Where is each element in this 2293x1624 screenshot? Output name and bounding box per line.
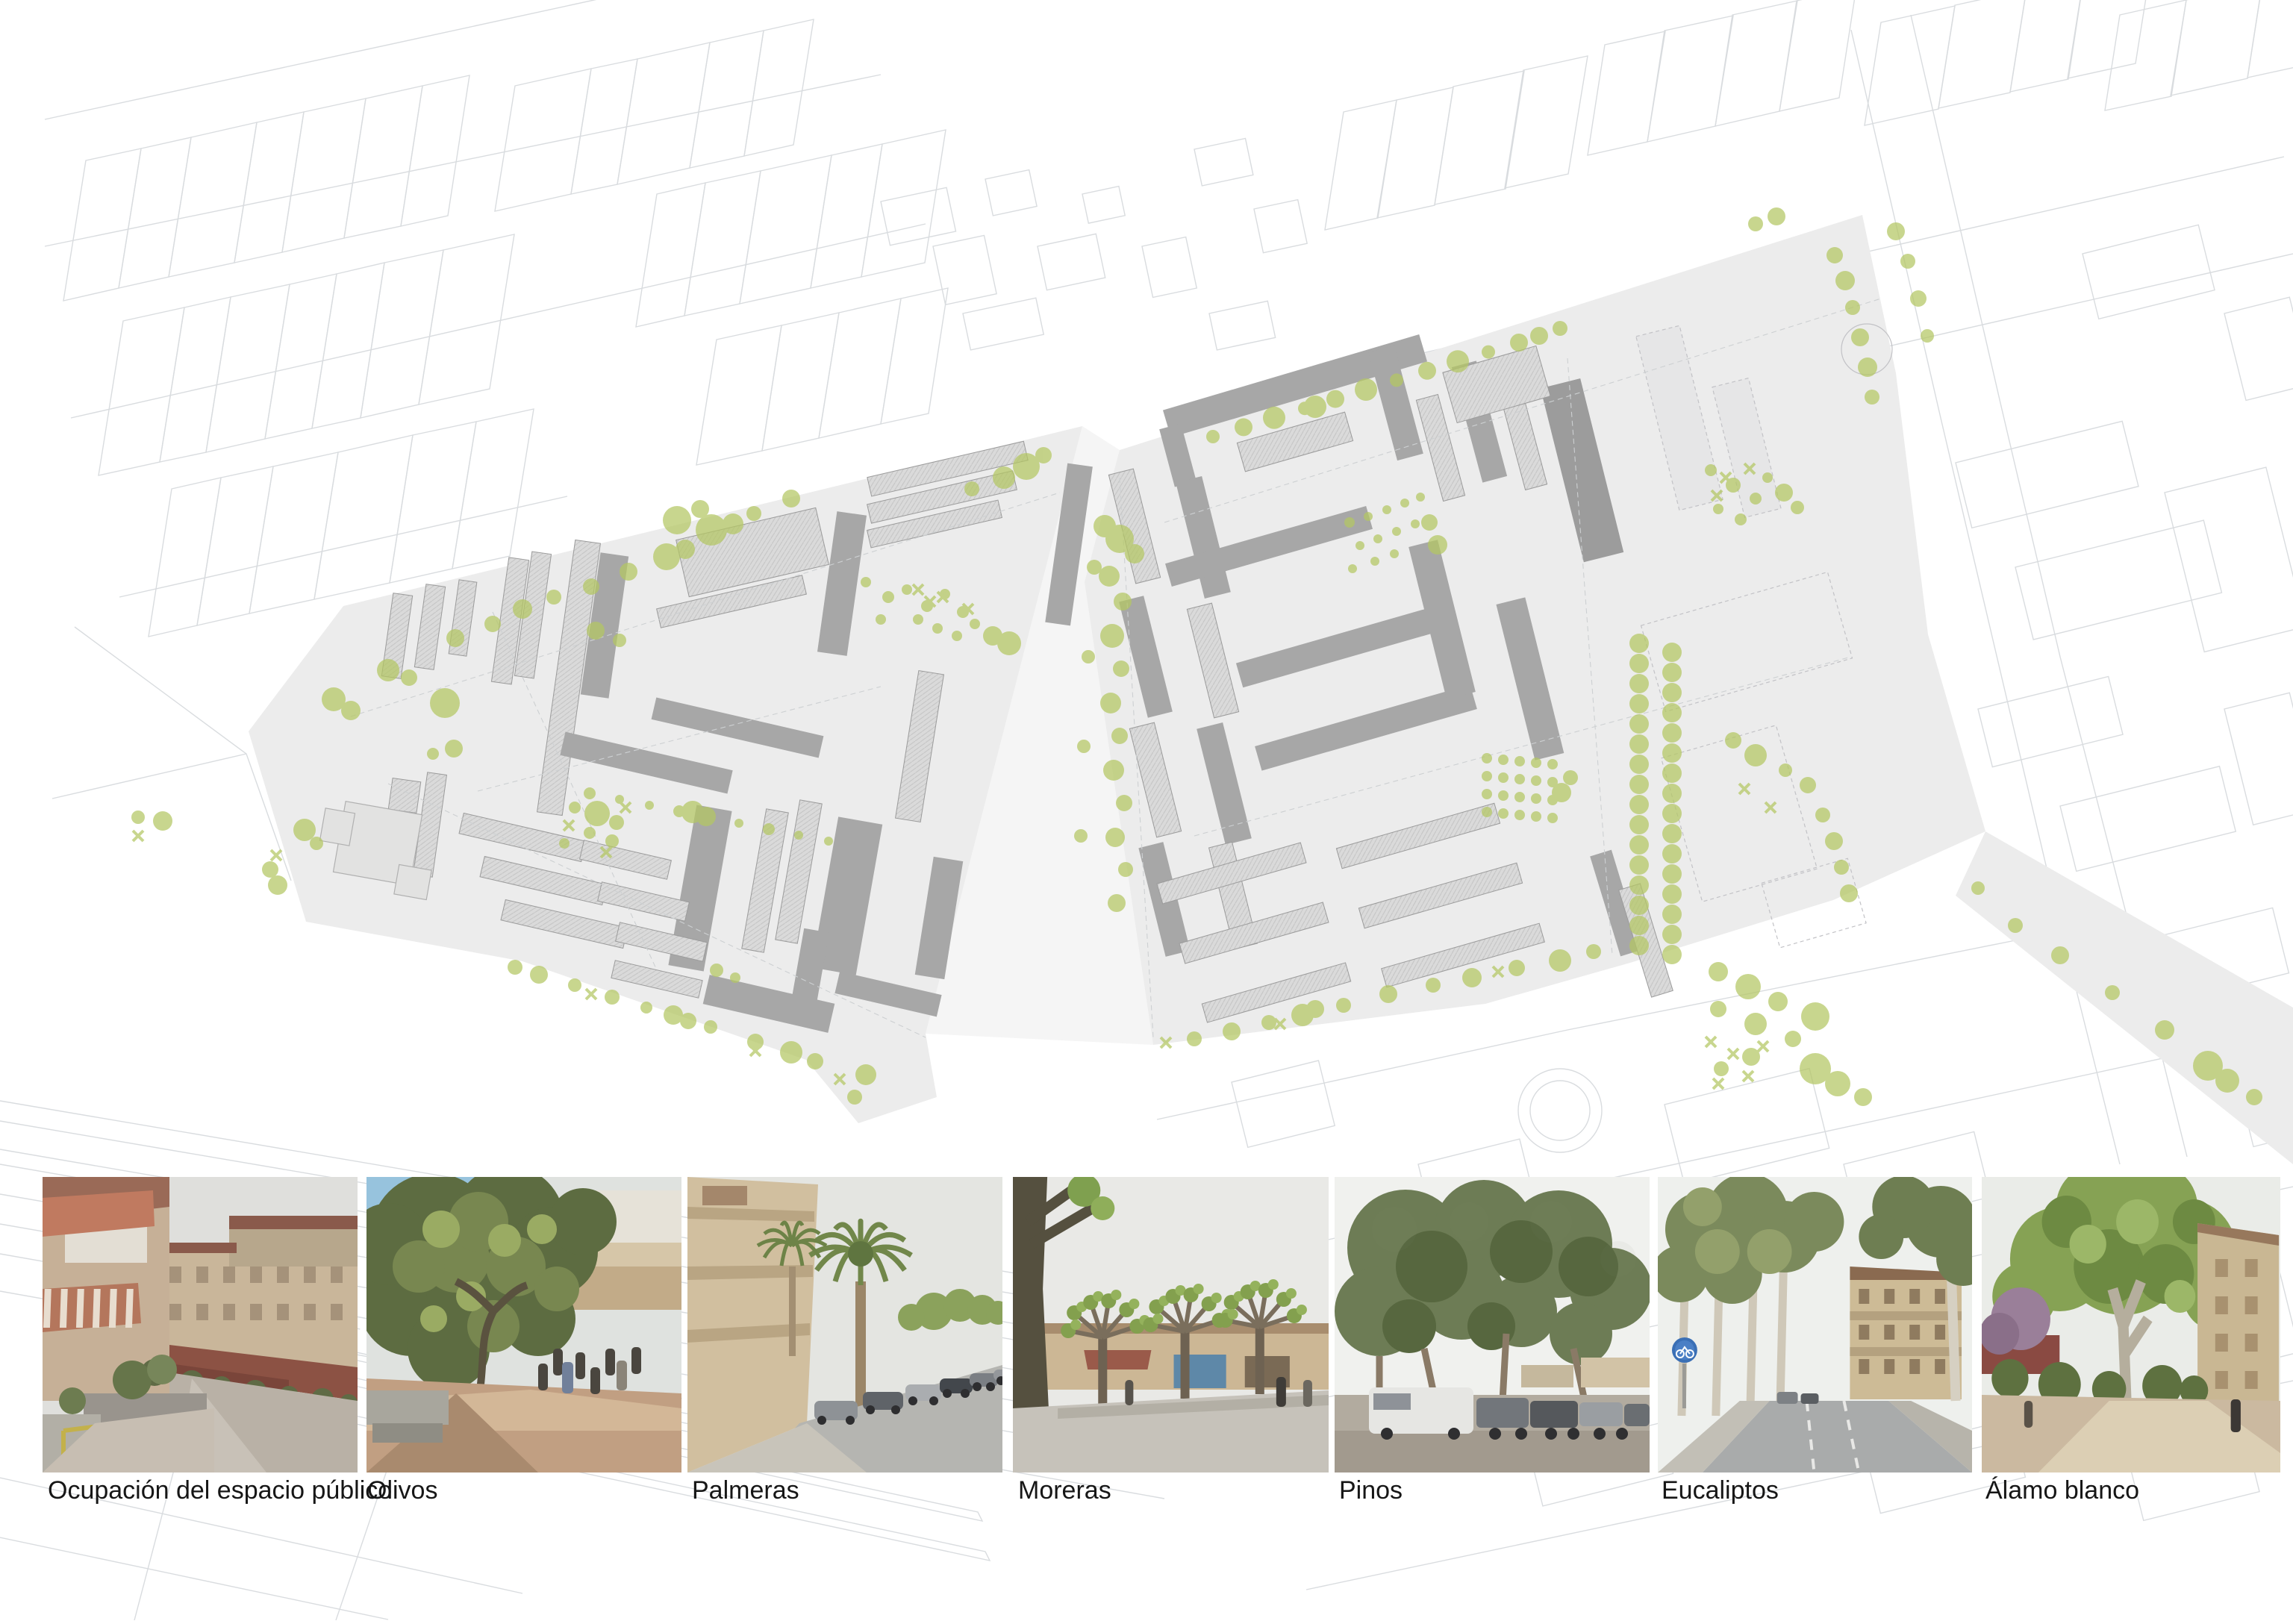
svg-text:Ocupación del espacio público: Ocupación del espacio público — [48, 1476, 392, 1505]
svg-text:Álamo blanco: Álamo blanco — [1985, 1476, 2139, 1505]
svg-text:Pinos: Pinos — [1339, 1476, 1403, 1505]
svg-text:Eucaliptos: Eucaliptos — [1662, 1476, 1779, 1505]
svg-text:Moreras: Moreras — [1018, 1476, 1111, 1505]
svg-text:Palmeras: Palmeras — [692, 1476, 799, 1505]
svg-text:Olivos: Olivos — [367, 1476, 437, 1505]
